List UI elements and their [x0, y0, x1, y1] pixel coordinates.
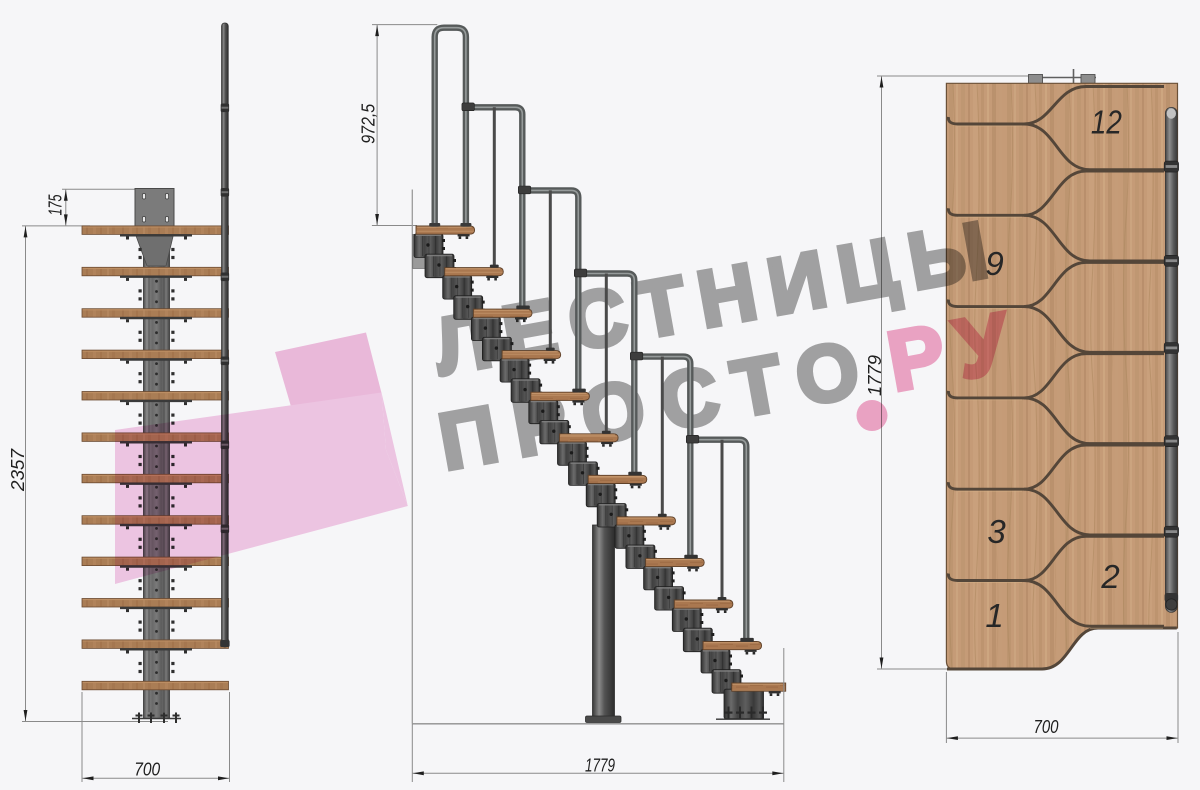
svg-text:2: 2	[1100, 558, 1119, 595]
svg-text:1779: 1779	[585, 754, 615, 775]
svg-text:175: 175	[45, 194, 66, 215]
svg-text:972,5: 972,5	[358, 103, 379, 144]
svg-text:700: 700	[1034, 716, 1060, 737]
svg-text:2357: 2357	[7, 448, 28, 492]
svg-text:3: 3	[987, 513, 1006, 550]
svg-text:12: 12	[1091, 104, 1122, 141]
svg-text:700: 700	[134, 759, 161, 780]
svg-text:1: 1	[985, 597, 1003, 634]
